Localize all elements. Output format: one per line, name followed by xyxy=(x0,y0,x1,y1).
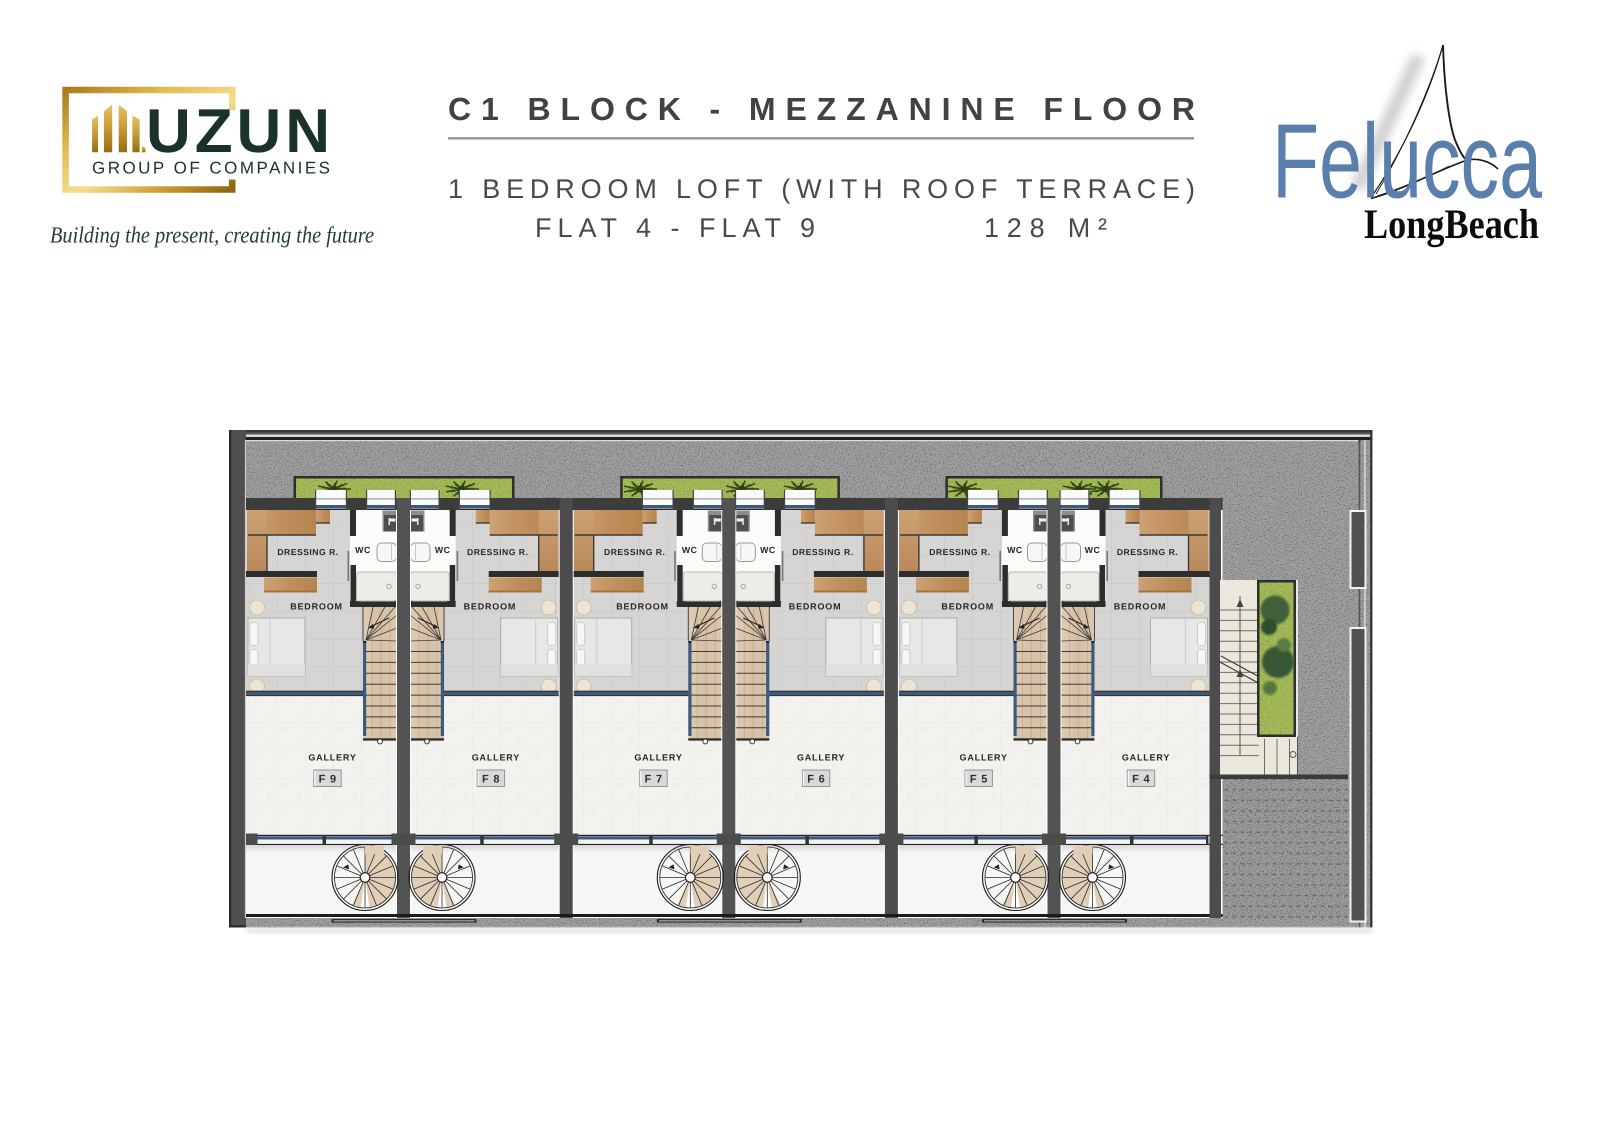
svg-text:F 7: F 7 xyxy=(645,774,663,786)
svg-text:WC: WC xyxy=(1085,545,1101,555)
svg-text:Building the present, creating: Building the present, creating the futur… xyxy=(50,223,374,248)
svg-text:F 4: F 4 xyxy=(1132,774,1150,786)
svg-text:LongBeach: LongBeach xyxy=(1364,202,1539,248)
svg-text:GALLERY: GALLERY xyxy=(960,753,1008,763)
svg-text:GALLERY: GALLERY xyxy=(797,753,845,763)
svg-text:GALLERY: GALLERY xyxy=(634,753,682,763)
svg-text:BEDROOM: BEDROOM xyxy=(464,602,517,612)
svg-text:1 BEDROOM LOFT (WITH ROOF TE: 1 BEDROOM LOFT (WITH ROOF TERRACE) xyxy=(448,174,1195,204)
svg-text:BEDROOM: BEDROOM xyxy=(1114,602,1167,612)
svg-text:DRESSING R.: DRESSING R. xyxy=(929,547,990,557)
svg-text:DRESSING R.: DRESSING R. xyxy=(1117,547,1178,557)
svg-text:DRESSING R.: DRESSING R. xyxy=(604,547,665,557)
svg-text:F 6: F 6 xyxy=(807,774,825,786)
svg-text:WC: WC xyxy=(1007,545,1023,555)
svg-text:GROUP OF COMPANIES: GROUP OF COMPANIES xyxy=(92,159,330,178)
svg-text:GALLERY: GALLERY xyxy=(1122,753,1170,763)
svg-text:WC: WC xyxy=(682,545,698,555)
svg-text:F 9: F 9 xyxy=(319,774,337,786)
svg-text:WC: WC xyxy=(760,545,776,555)
svg-text:C1 BLOCK - MEZZANINE FLOOR: C1 BLOCK - MEZZANINE FLOOR xyxy=(448,91,1195,127)
svg-text:DRESSING R.: DRESSING R. xyxy=(467,547,528,557)
svg-text:DRESSING R.: DRESSING R. xyxy=(792,547,853,557)
svg-text:BEDROOM: BEDROOM xyxy=(290,602,343,612)
svg-text:WC: WC xyxy=(435,545,451,555)
svg-text:BEDROOM: BEDROOM xyxy=(616,602,669,612)
svg-text:DRESSING R.: DRESSING R. xyxy=(277,547,338,557)
svg-text:UZUN: UZUN xyxy=(146,97,330,166)
svg-text:GALLERY: GALLERY xyxy=(308,753,356,763)
svg-text:GALLERY: GALLERY xyxy=(472,753,520,763)
svg-text:F 8: F 8 xyxy=(482,774,500,786)
svg-text:BEDROOM: BEDROOM xyxy=(941,602,994,612)
svg-text:BEDROOM: BEDROOM xyxy=(789,602,842,612)
svg-text:128 M²: 128 M² xyxy=(984,213,1107,243)
svg-text:F 5: F 5 xyxy=(970,774,988,786)
svg-text:WC: WC xyxy=(355,545,371,555)
svg-text:FLAT 4 - FLAT 9: FLAT 4 - FLAT 9 xyxy=(535,213,815,243)
